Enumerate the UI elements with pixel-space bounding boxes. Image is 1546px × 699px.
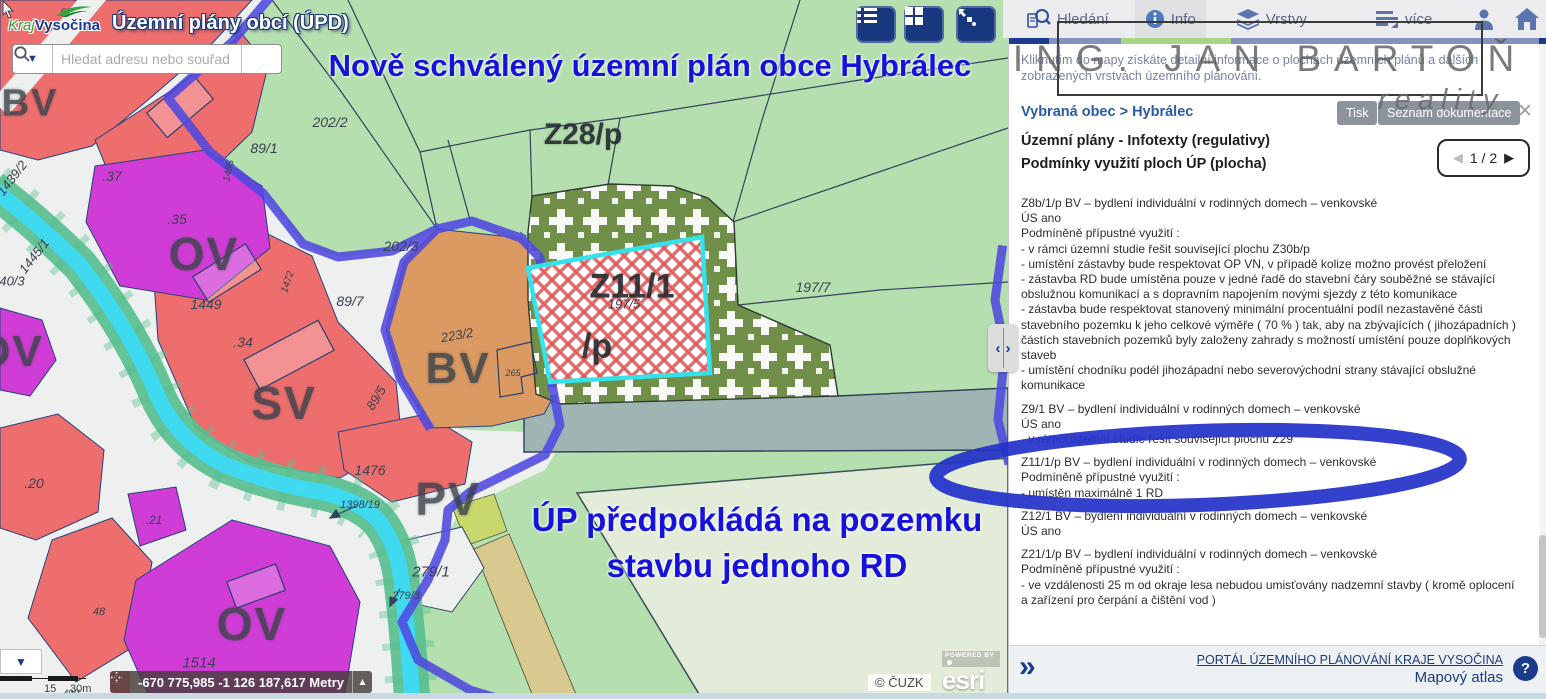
regulation-block: Z21/1/p BV – bydlení individuální v rodi… bbox=[1021, 547, 1545, 608]
page-title: Územní plány obcí (ÚPD) bbox=[112, 12, 349, 35]
esri-wordmark: esri bbox=[942, 669, 1000, 691]
cuzk-attribution: © ČUZK bbox=[868, 674, 931, 691]
legend-button[interactable] bbox=[856, 6, 896, 43]
coordinates-value: -670 775,985 -1 126 187,617 Metry bbox=[130, 671, 352, 693]
breadcrumb[interactable]: Vybraná obec > Hybrálec bbox=[1021, 104, 1193, 120]
search-doc-icon bbox=[1027, 8, 1051, 30]
coordinate-readout: -670 775,985 -1 126 187,617 Metry ▲ bbox=[110, 671, 372, 693]
help-button[interactable]: ? bbox=[1513, 656, 1538, 681]
tab-vrstvy-label: Vrstvy bbox=[1266, 11, 1307, 28]
search-box: ▼ bbox=[12, 44, 282, 74]
regulations-list: Z8b/1/p BV – bydlení individuální v rodi… bbox=[1021, 196, 1545, 616]
panel-footer: » PORTÁL ÚZEMNÍHO PLÁNOVÁNÍ KRAJE VYSOČI… bbox=[1009, 645, 1546, 693]
print-button[interactable]: Tisk bbox=[1337, 101, 1377, 125]
tab-vrstvy[interactable]: Vrstvy bbox=[1226, 0, 1317, 38]
layers-icon bbox=[1236, 8, 1260, 30]
regulation-block: Z9/1 BV – bydlení individuální v rodinný… bbox=[1021, 402, 1545, 448]
tab-info-label: Info bbox=[1171, 11, 1196, 28]
panel-intro-text: Kliknutím do mapy získáte detailní infor… bbox=[1021, 52, 1496, 84]
kraj-vysocina-logo[interactable]: KrajVysočina bbox=[8, 3, 108, 39]
info-panel: Hledání Info Vrstvy bbox=[1008, 0, 1546, 699]
info-icon bbox=[1145, 9, 1165, 29]
tab-vice-label: více bbox=[1405, 11, 1433, 28]
panel-scrollbar-thumb[interactable] bbox=[1539, 535, 1546, 638]
user-icon bbox=[1472, 7, 1496, 31]
home-button[interactable] bbox=[1514, 7, 1540, 36]
legend-list-icon bbox=[856, 6, 878, 26]
page-indicator: 1 / 2 bbox=[1470, 150, 1497, 166]
logo-text: KrajVysočina bbox=[8, 17, 100, 34]
tab-info[interactable]: Info bbox=[1135, 0, 1206, 38]
search-input[interactable] bbox=[53, 45, 241, 73]
crosshair-icon bbox=[110, 671, 130, 693]
regulation-block: Z11/1/p BV – bydlení individuální v rodi… bbox=[1021, 455, 1545, 501]
extent-arrows-icon bbox=[956, 6, 978, 28]
user-button[interactable] bbox=[1472, 7, 1496, 36]
panel-splitter-handle[interactable]: ‹› bbox=[988, 324, 1018, 372]
tab-vice[interactable]: více bbox=[1365, 0, 1443, 38]
portal-link[interactable]: PORTÁL ÚZEMNÍHO PLÁNOVÁNÍ KRAJE VYSOČINA bbox=[1197, 653, 1503, 667]
logo-swoosh-icon bbox=[54, 2, 94, 18]
panel-content: Kliknutím do mapy získáte detailní infor… bbox=[1009, 44, 1546, 645]
search-button[interactable] bbox=[241, 45, 281, 73]
coordbar-expand-button[interactable]: ▲ bbox=[352, 671, 372, 693]
search-icon bbox=[13, 45, 31, 63]
app-window: BVOVOVSVBVPVOVZ28/pZ11/1/p57202/289/1.37… bbox=[0, 0, 1546, 699]
pagination: ◀ 1 / 2 ▶ bbox=[1437, 139, 1530, 177]
esri-logo[interactable]: POWERED BY esri bbox=[942, 651, 1000, 696]
close-icon[interactable]: ✕ bbox=[1517, 100, 1533, 123]
map-canvas[interactable]: BVOVOVSVBVPVOVZ28/pZ11/1/p57202/289/1.37… bbox=[0, 0, 1008, 699]
home-icon bbox=[1514, 7, 1540, 31]
more-lines-icon bbox=[1375, 9, 1399, 29]
basemap-grid-icon bbox=[904, 6, 924, 26]
panel-heading-2: Podmínky využití ploch ÚP (plocha) bbox=[1021, 156, 1266, 172]
tab-hledani-label: Hledání bbox=[1057, 11, 1109, 28]
panel-heading-1: Územní plány - Infotexty (regulativy) bbox=[1021, 133, 1270, 149]
regulation-block: Z8b/1/p BV – bydlení individuální v rodi… bbox=[1021, 196, 1545, 394]
regulation-block: Z12/1 BV – bydlení individuální v rodinn… bbox=[1021, 509, 1545, 539]
overview-map-toggle[interactable]: ▼ bbox=[0, 649, 42, 674]
bottom-strip bbox=[0, 693, 1546, 699]
map-atlas-label: Mapový atlas bbox=[1197, 669, 1503, 686]
basemap-button[interactable] bbox=[904, 6, 944, 43]
page-next-button[interactable]: ▶ bbox=[1504, 150, 1514, 166]
footer-expand-button[interactable]: » bbox=[1019, 650, 1036, 684]
map-graphics bbox=[0, 0, 1008, 699]
documentation-list-button[interactable]: Seznam dokumentace bbox=[1378, 101, 1520, 125]
extent-button[interactable] bbox=[956, 6, 996, 43]
tab-hledani[interactable]: Hledání bbox=[1017, 0, 1119, 38]
page-prev-button[interactable]: ◀ bbox=[1453, 150, 1463, 166]
panel-tabbar: Hledání Info Vrstvy bbox=[1003, 0, 1546, 38]
cursor-arrow-icon bbox=[0, 0, 16, 18]
powered-by-label: POWERED BY bbox=[945, 652, 994, 659]
